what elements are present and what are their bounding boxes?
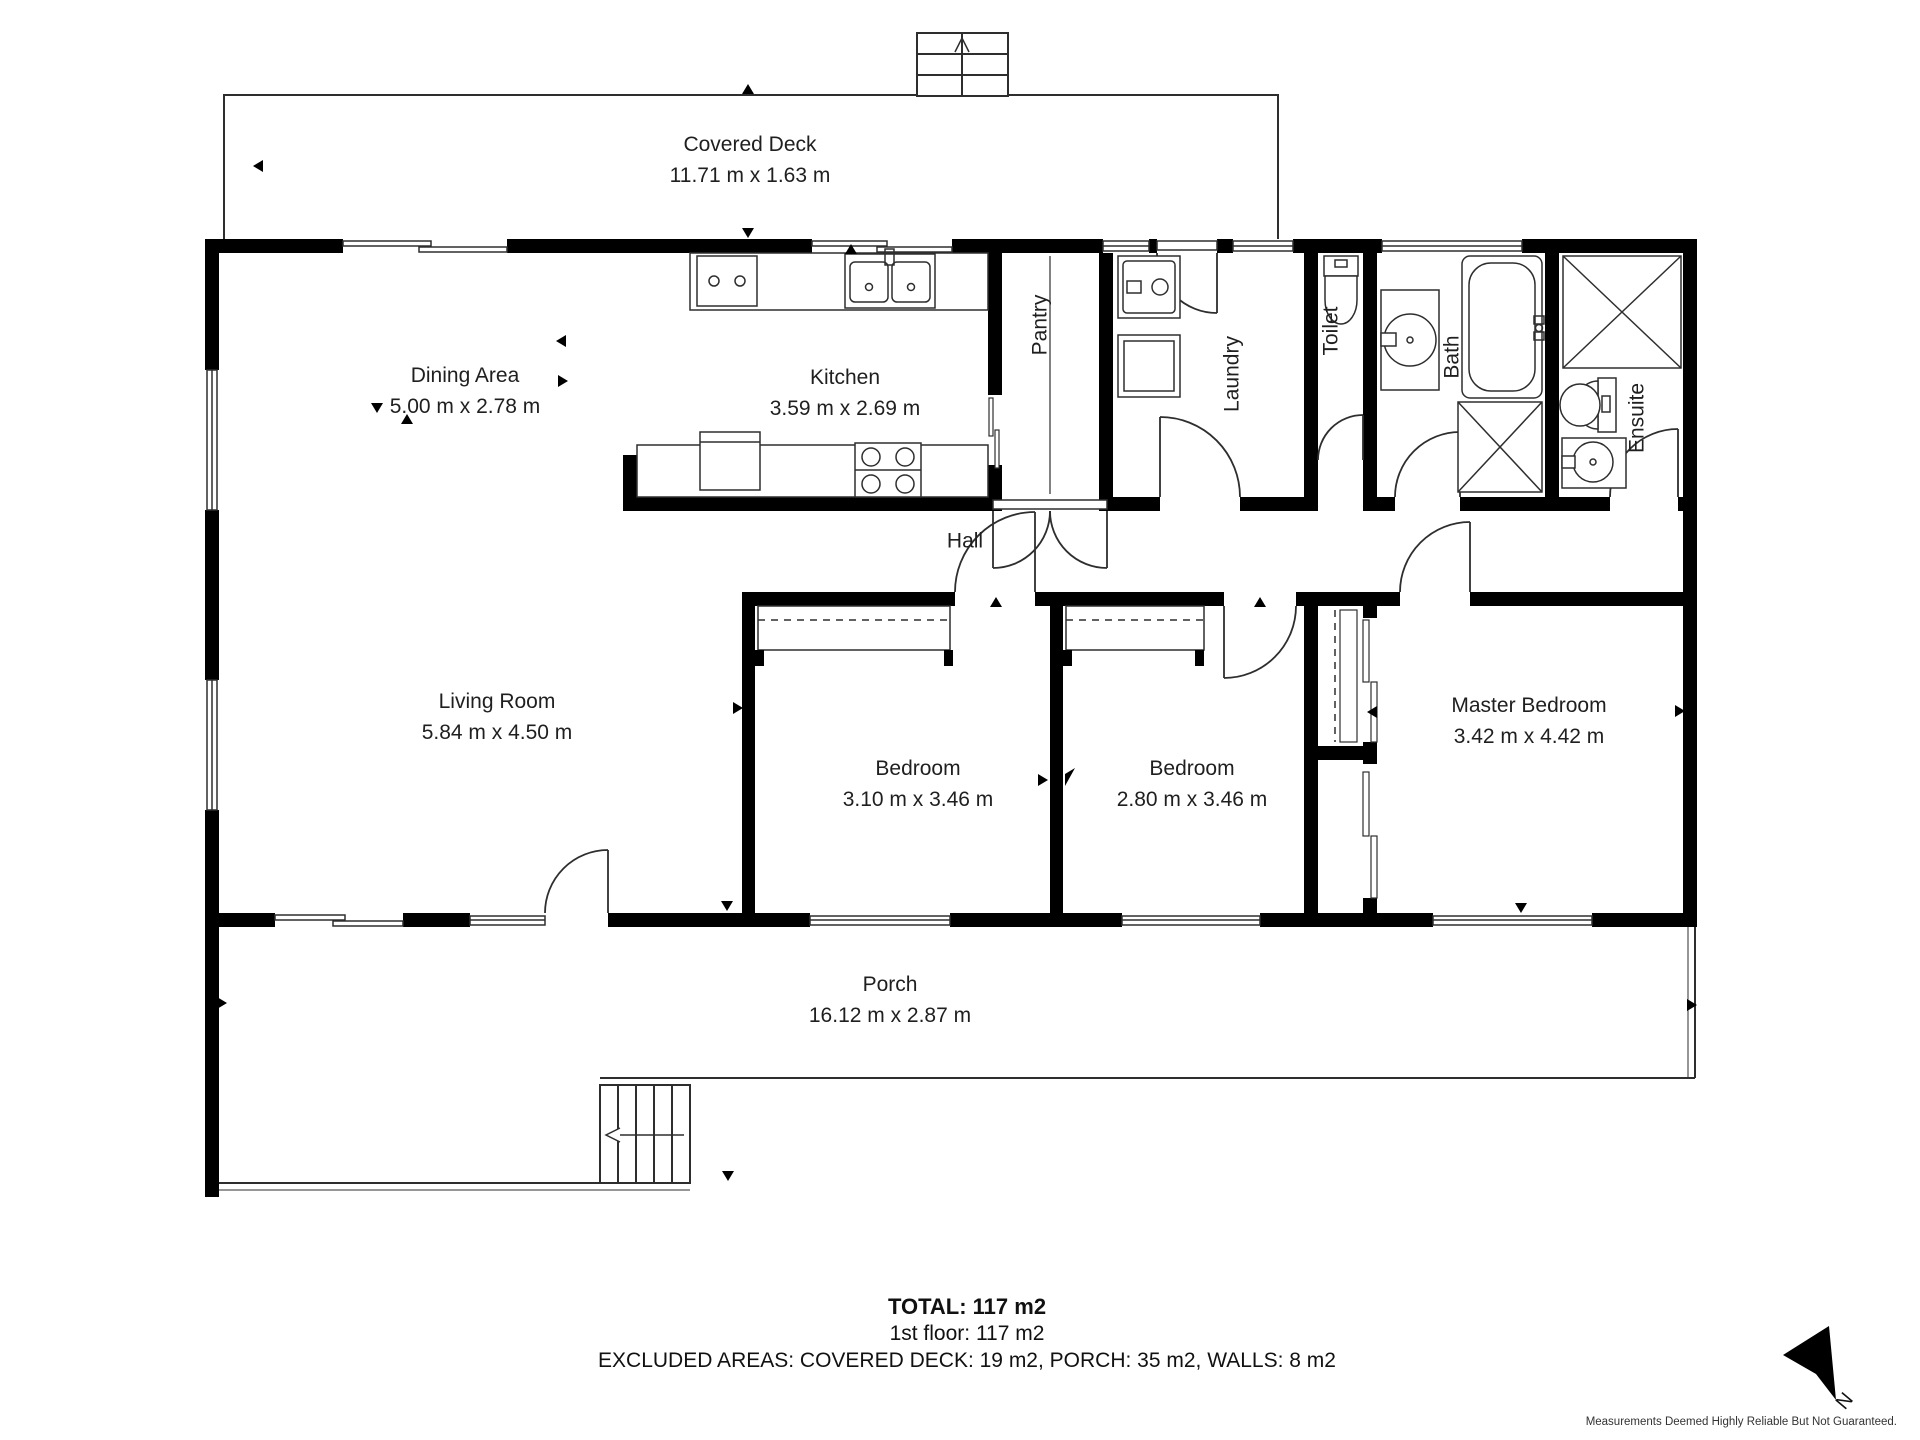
kitchen-sink-icon bbox=[845, 249, 935, 308]
room-name: Pantry bbox=[1025, 295, 1056, 356]
room-dims: 16.12 m x 2.87 m bbox=[809, 1000, 971, 1031]
porch-outline bbox=[219, 927, 1695, 1190]
label-laundry: Laundry bbox=[1217, 336, 1248, 412]
room-name: Kitchen bbox=[770, 362, 921, 393]
room-name: Covered Deck bbox=[670, 129, 831, 160]
label-porch: Porch 16.12 m x 2.87 m bbox=[809, 969, 971, 1031]
room-name: Hall bbox=[947, 526, 983, 557]
summary-excluded-areas: EXCLUDED AREAS: COVERED DECK: 19 m2, POR… bbox=[598, 1349, 1336, 1373]
room-name: Ensuite bbox=[1622, 383, 1653, 453]
room-dims: 3.59 m x 2.69 m bbox=[770, 393, 921, 424]
room-name: Laundry bbox=[1217, 336, 1248, 412]
label-kitchen: Kitchen 3.59 m x 2.69 m bbox=[770, 362, 921, 424]
ensuite-shower-icon bbox=[1563, 256, 1681, 368]
room-name: Bedroom bbox=[843, 753, 994, 784]
room-dims: 3.10 m x 3.46 m bbox=[843, 784, 994, 815]
stove-icon bbox=[855, 443, 921, 497]
label-pantry: Pantry bbox=[1025, 295, 1056, 356]
closets bbox=[755, 606, 1377, 898]
room-name: Bath bbox=[1437, 335, 1468, 378]
bathtub-icon bbox=[1462, 256, 1544, 398]
label-master: Master Bedroom 3.42 m x 4.42 m bbox=[1451, 690, 1606, 752]
bath-vanity-icon bbox=[1381, 290, 1439, 390]
label-living: Living Room 5.84 m x 4.50 m bbox=[422, 686, 573, 748]
disclaimer-text: Measurements Deemed Highly Reliable But … bbox=[1586, 1416, 1897, 1428]
room-name: Dining Area bbox=[390, 360, 541, 391]
summary-total: TOTAL: 117 m2 bbox=[888, 1294, 1046, 1320]
bath-shower-icon bbox=[1458, 402, 1542, 492]
label-ensuite: Ensuite bbox=[1622, 383, 1653, 453]
room-name: Porch bbox=[809, 969, 971, 1000]
ensuite-toilet-icon bbox=[1560, 378, 1616, 432]
room-name: Toilet bbox=[1316, 306, 1347, 355]
room-dims: 5.00 m x 2.78 m bbox=[390, 391, 541, 422]
label-toilet: Toilet bbox=[1316, 306, 1347, 355]
fridge-icon bbox=[700, 432, 760, 490]
ensuite-sink-icon bbox=[1562, 438, 1626, 488]
floorplan-drawing bbox=[0, 0, 1920, 1440]
room-name: Master Bedroom bbox=[1451, 690, 1606, 721]
room-dims: 3.42 m x 4.42 m bbox=[1451, 721, 1606, 752]
floorplan-page: Covered Deck 11.71 m x 1.63 m Dining Are… bbox=[0, 0, 1920, 1440]
deck-stairs-icon bbox=[917, 33, 1008, 96]
summary-first-floor: 1st floor: 117 m2 bbox=[890, 1322, 1045, 1346]
room-dims: 11.71 m x 1.63 m bbox=[670, 160, 831, 191]
room-name: Bedroom bbox=[1117, 753, 1268, 784]
label-bedroom2: Bedroom 2.80 m x 3.46 m bbox=[1117, 753, 1268, 815]
room-name: Living Room bbox=[422, 686, 573, 717]
porch-stairs-icon bbox=[600, 1085, 690, 1183]
label-hall: Hall bbox=[947, 526, 983, 557]
label-bedroom1: Bedroom 3.10 m x 3.46 m bbox=[843, 753, 994, 815]
room-dims: 5.84 m x 4.50 m bbox=[422, 717, 573, 748]
washing-machine-icon bbox=[1118, 256, 1180, 318]
north-arrow-icon bbox=[1783, 1326, 1836, 1400]
label-covered-deck: Covered Deck 11.71 m x 1.63 m bbox=[670, 129, 831, 191]
laundry-tub-icon bbox=[1118, 335, 1180, 397]
room-dims: 2.80 m x 3.46 m bbox=[1117, 784, 1268, 815]
label-bath: Bath bbox=[1437, 335, 1468, 378]
label-dining: Dining Area 5.00 m x 2.78 m bbox=[390, 360, 541, 422]
